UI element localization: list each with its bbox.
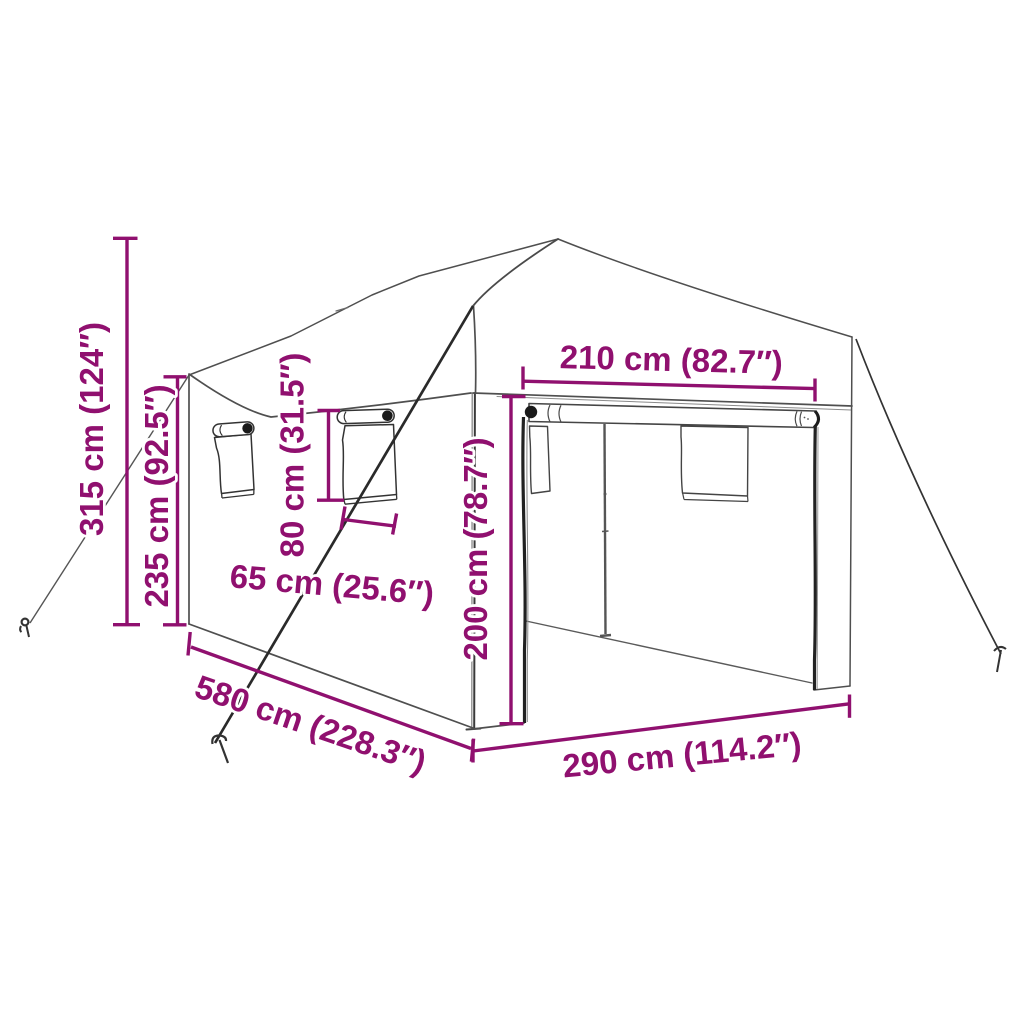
svg-text:210 cm (82.7″): 210 cm (82.7″) [559, 338, 783, 381]
svg-text:235 cm (92.5″): 235 cm (92.5″) [138, 384, 175, 607]
svg-text:315 cm (124″): 315 cm (124″) [73, 322, 110, 536]
svg-text:80 cm (31.5″): 80 cm (31.5″) [274, 353, 311, 558]
svg-text:200 cm (78.7″): 200 cm (78.7″) [457, 437, 494, 660]
